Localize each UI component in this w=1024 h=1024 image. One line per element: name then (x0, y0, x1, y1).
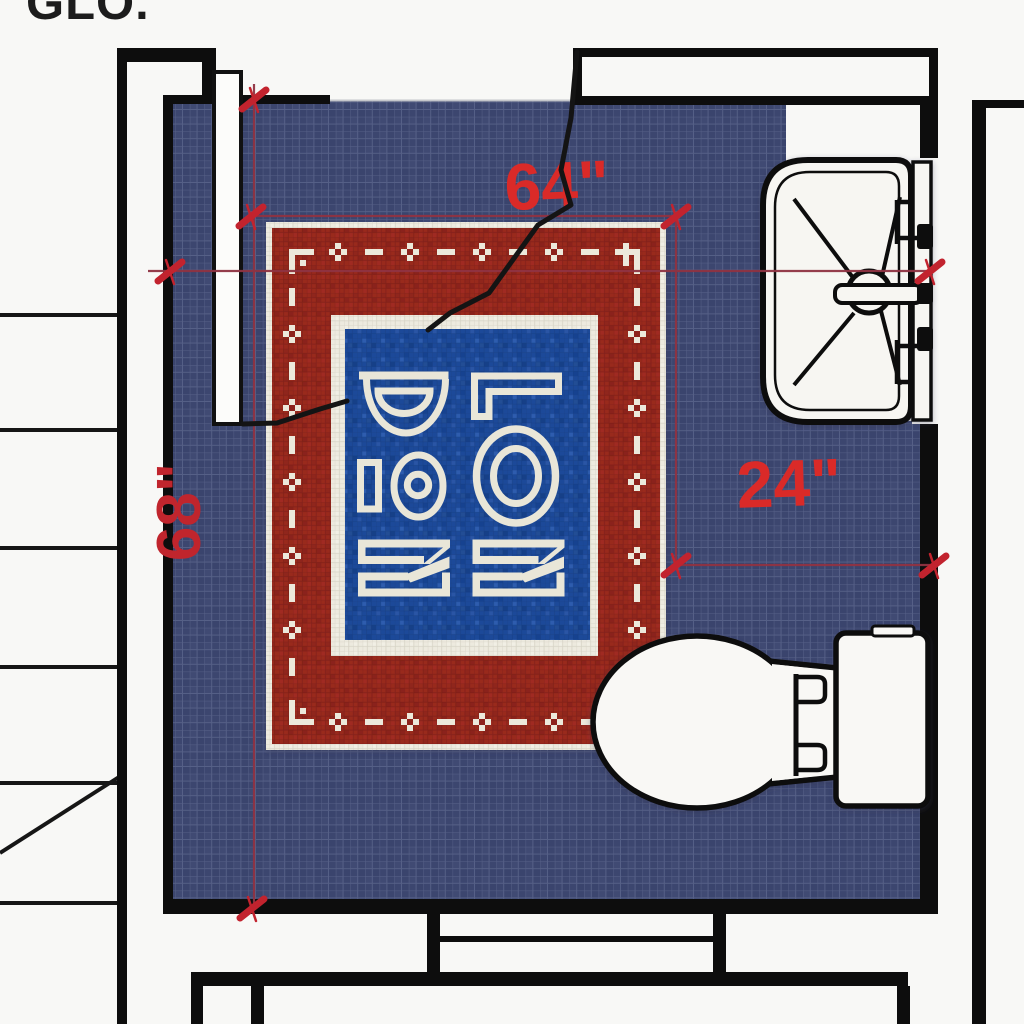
svg-text:68": 68" (145, 463, 214, 561)
svg-text:24": 24" (735, 444, 842, 522)
svg-text:GLO.: GLO. (26, 0, 150, 30)
